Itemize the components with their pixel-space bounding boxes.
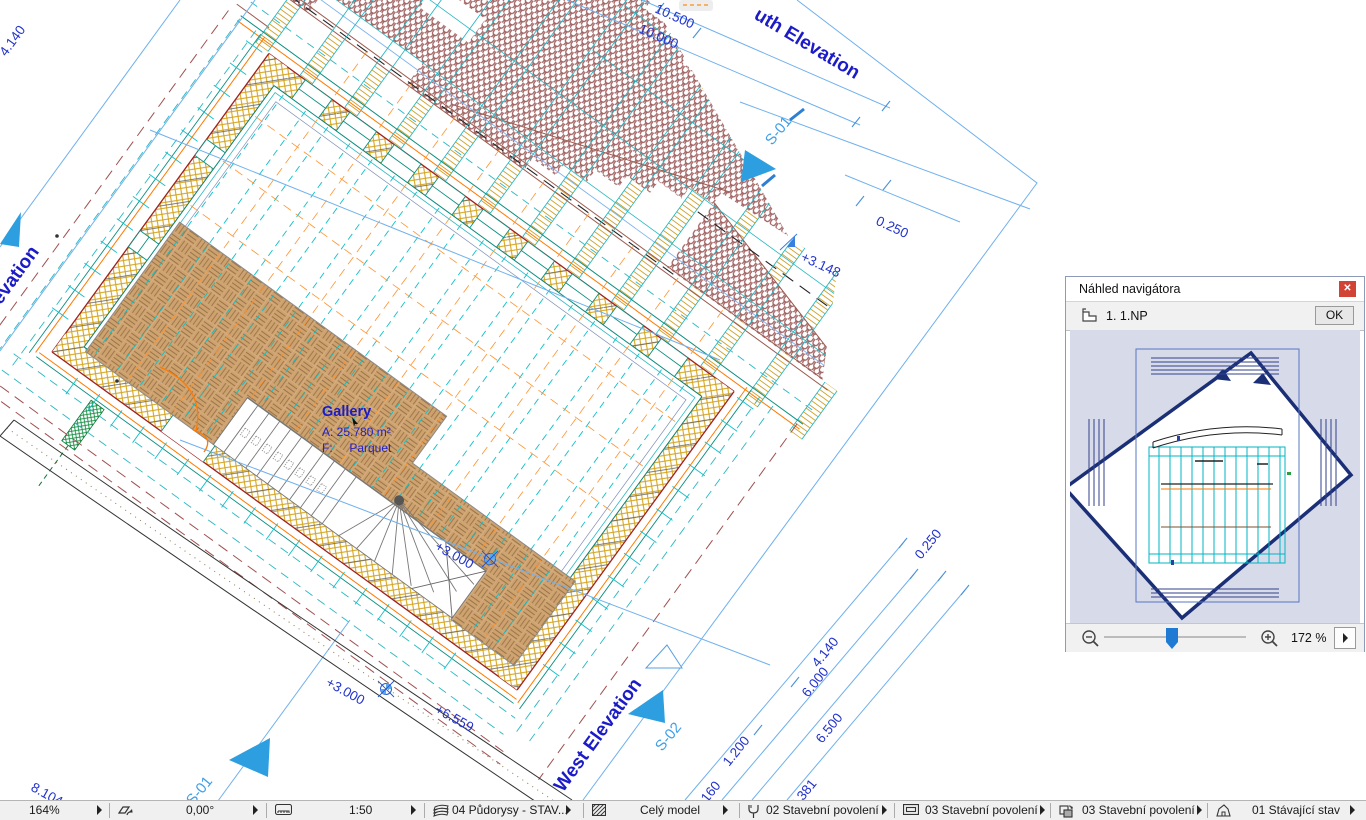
svg-text:West Elevation: West Elevation	[550, 675, 646, 796]
svg-text:0.250: 0.250	[912, 526, 945, 562]
svg-text:4.140: 4.140	[0, 23, 28, 59]
svg-text:A: 25.780 m²: A: 25.780 m²	[322, 425, 391, 439]
svg-text:+3.000: +3.000	[324, 675, 368, 708]
svg-text:Elevation: Elevation	[0, 242, 44, 323]
svg-text:6.500: 6.500	[813, 710, 846, 746]
svg-text:1.200: 1.200	[720, 733, 753, 769]
svg-text:6.000: 6.000	[799, 664, 832, 700]
svg-text:S-02: S-02	[652, 719, 685, 754]
svg-text:+6.559: +6.559	[433, 702, 477, 735]
svg-text:F: Parquet: F: Parquet	[322, 441, 392, 455]
svg-text:172 %: 172 %	[1291, 631, 1326, 645]
svg-text:0.250: 0.250	[874, 213, 911, 241]
svg-text:Gallery: Gallery	[322, 404, 371, 420]
svg-text:+3.148: +3.148	[799, 249, 843, 280]
